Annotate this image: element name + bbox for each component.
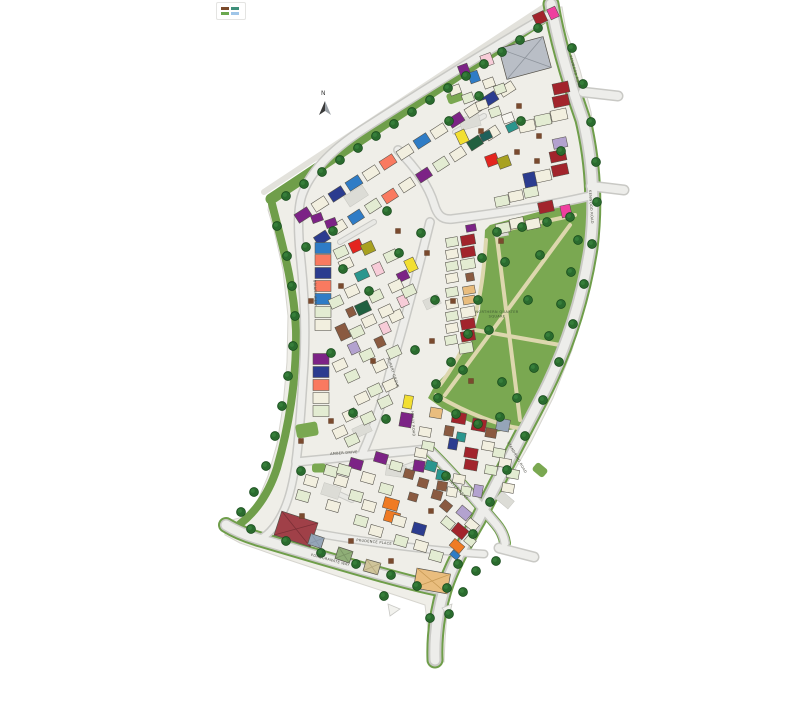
tree-icon — [383, 207, 392, 216]
tree-icon — [278, 402, 287, 411]
house-block — [445, 287, 458, 298]
shed-block — [371, 359, 376, 364]
tree-icon — [426, 614, 435, 623]
house-block — [445, 273, 458, 284]
tree-icon — [592, 158, 601, 167]
shed-block — [396, 229, 401, 234]
tree-icon — [469, 530, 478, 539]
tree-icon — [444, 84, 453, 93]
shed-block — [515, 150, 520, 155]
house-block — [484, 465, 497, 476]
tree-icon — [496, 413, 505, 422]
house-block — [492, 448, 505, 459]
north-arrow-icon — [319, 101, 331, 115]
north-label: N — [321, 91, 326, 97]
shed-block — [299, 439, 304, 444]
site-plan-page: NORTHERN QUARTERSQUAREKENWOOD ROADKENWOO… — [0, 0, 795, 705]
tree-icon — [536, 251, 545, 260]
tree-icon — [387, 571, 396, 580]
tree-icon — [432, 380, 441, 389]
tree-icon — [454, 560, 463, 569]
tree-icon — [329, 227, 338, 236]
tree-icon — [318, 168, 327, 177]
tree-icon — [452, 410, 461, 419]
house-block — [460, 318, 476, 330]
tree-icon — [349, 409, 358, 418]
tree-icon — [539, 396, 548, 405]
house-block — [315, 320, 331, 331]
tree-icon — [566, 213, 575, 222]
tree-icon — [498, 48, 507, 57]
tree-icon — [555, 358, 564, 367]
tree-icon — [273, 222, 282, 231]
tree-icon — [352, 560, 361, 569]
shed-block — [451, 299, 456, 304]
shed-block — [469, 379, 474, 384]
tree-icon — [501, 258, 510, 267]
tree-icon — [517, 117, 526, 126]
house-block — [313, 406, 329, 417]
tree-icon — [474, 420, 483, 429]
house-block — [464, 459, 479, 471]
tree-icon — [250, 488, 259, 497]
tree-icon — [431, 296, 440, 305]
tree-icon — [395, 249, 404, 258]
house-block — [460, 258, 476, 270]
tree-icon — [445, 610, 454, 619]
tree-icon — [443, 584, 452, 593]
house-block — [464, 447, 479, 459]
tree-icon — [327, 349, 336, 358]
tree-icon — [524, 296, 533, 305]
tree-icon — [574, 236, 583, 245]
house-block — [460, 234, 476, 246]
tree-icon — [513, 394, 522, 403]
shed-block — [349, 539, 354, 544]
house-block — [465, 224, 476, 233]
tree-icon — [459, 588, 468, 597]
house-block — [445, 261, 458, 272]
tree-icon — [492, 557, 501, 566]
tree-icon — [557, 300, 566, 309]
shed-block — [535, 159, 540, 164]
tree-icon — [485, 326, 494, 335]
masterplan-svg: NORTHERN QUARTERSQUAREKENWOOD ROADKENWOO… — [0, 0, 795, 705]
tree-icon — [474, 296, 483, 305]
house-block — [501, 483, 514, 494]
house-block — [436, 481, 447, 492]
tree-icon — [339, 265, 348, 274]
house-block — [481, 441, 494, 452]
tree-icon — [262, 462, 271, 471]
house-block — [429, 407, 443, 419]
tree-icon — [472, 567, 481, 576]
shed-block — [429, 509, 434, 514]
shed-block — [389, 559, 394, 564]
legend-row — [221, 7, 241, 10]
house-block — [465, 272, 474, 281]
house-block — [485, 428, 497, 439]
house-block — [313, 354, 329, 365]
house-block — [313, 393, 329, 404]
tree-icon — [434, 394, 443, 403]
tree-icon — [283, 252, 292, 261]
tree-icon — [413, 582, 422, 591]
tree-icon — [380, 592, 389, 601]
tree-icon — [271, 432, 280, 441]
house-block — [458, 342, 474, 354]
legend-chip — [231, 7, 239, 10]
tree-icon — [282, 537, 291, 546]
house-block — [315, 307, 331, 318]
tree-icon — [365, 287, 374, 296]
tree-icon — [336, 156, 345, 165]
tree-icon — [284, 372, 293, 381]
house-block — [448, 438, 459, 450]
tree-icon — [247, 525, 256, 534]
tree-icon — [580, 280, 589, 289]
tree-icon — [382, 415, 391, 424]
tree-icon — [300, 180, 309, 189]
legend-chip — [221, 7, 229, 10]
road-surface — [499, 548, 534, 557]
tree-icon — [354, 144, 363, 153]
house-block — [313, 367, 329, 378]
tree-icon — [521, 432, 530, 441]
tree-icon — [587, 118, 596, 127]
tree-icon — [503, 466, 512, 475]
tree-icon — [530, 364, 539, 373]
tree-icon — [475, 92, 484, 101]
house-block — [445, 311, 458, 322]
tree-icon — [478, 254, 487, 263]
tree-icon — [289, 342, 298, 351]
tree-icon — [288, 282, 297, 291]
tree-icon — [486, 498, 495, 507]
tree-icon — [445, 117, 454, 126]
pocket-green — [531, 462, 548, 479]
tree-icon — [480, 60, 489, 69]
house-block — [460, 246, 476, 258]
house-block — [473, 484, 484, 497]
shed-block — [479, 129, 484, 134]
tree-icon — [557, 147, 566, 156]
tree-icon — [447, 358, 456, 367]
house-block — [444, 335, 457, 346]
legend-row — [221, 12, 241, 15]
tree-icon — [282, 192, 291, 201]
house-block — [445, 249, 458, 260]
shed-block — [300, 514, 305, 519]
shed-block — [537, 134, 542, 139]
house-block — [402, 395, 413, 409]
tree-icon — [237, 508, 246, 517]
house-block — [315, 268, 331, 279]
house-block — [418, 427, 431, 438]
road-surface — [583, 92, 618, 96]
shed-block — [339, 284, 344, 289]
tree-icon — [390, 120, 399, 129]
house-block — [444, 425, 455, 436]
house-block — [445, 323, 458, 334]
shed-block — [425, 251, 430, 256]
shed-block — [309, 299, 314, 304]
road-surface — [591, 186, 624, 190]
house-block — [315, 255, 331, 266]
house-block — [462, 285, 475, 295]
legend-chip — [231, 12, 239, 15]
tree-icon — [518, 223, 527, 232]
house-block — [414, 448, 427, 459]
tree-icon — [568, 44, 577, 53]
legend-chip — [221, 12, 229, 15]
shed-block — [517, 104, 522, 109]
tree-icon — [493, 228, 502, 237]
tree-icon — [411, 346, 420, 355]
pocket-green — [312, 464, 326, 473]
tree-icon — [291, 312, 300, 321]
tree-icon — [498, 378, 507, 387]
tree-icon — [417, 229, 426, 238]
tree-icon — [426, 96, 435, 105]
shed-block — [329, 419, 334, 424]
tree-icon — [543, 218, 552, 227]
shed-block — [430, 339, 435, 344]
traffic-island — [388, 604, 400, 616]
legend-box — [216, 2, 246, 20]
house-block — [315, 243, 331, 254]
house-block — [313, 380, 329, 391]
tree-icon — [567, 268, 576, 277]
tree-icon — [462, 72, 471, 81]
tree-icon — [545, 332, 554, 341]
tree-icon — [588, 240, 597, 249]
house-block — [445, 237, 458, 248]
tree-icon — [302, 243, 311, 252]
tree-icon — [464, 330, 473, 339]
tree-icon — [459, 366, 468, 375]
house-block — [413, 460, 426, 473]
tree-icon — [372, 132, 381, 141]
tree-icon — [297, 467, 306, 476]
tree-icon — [408, 108, 417, 117]
tree-icon — [534, 24, 543, 33]
tree-icon — [516, 36, 525, 45]
tree-icon — [569, 320, 578, 329]
shed-block — [499, 239, 504, 244]
house-block — [460, 306, 476, 318]
